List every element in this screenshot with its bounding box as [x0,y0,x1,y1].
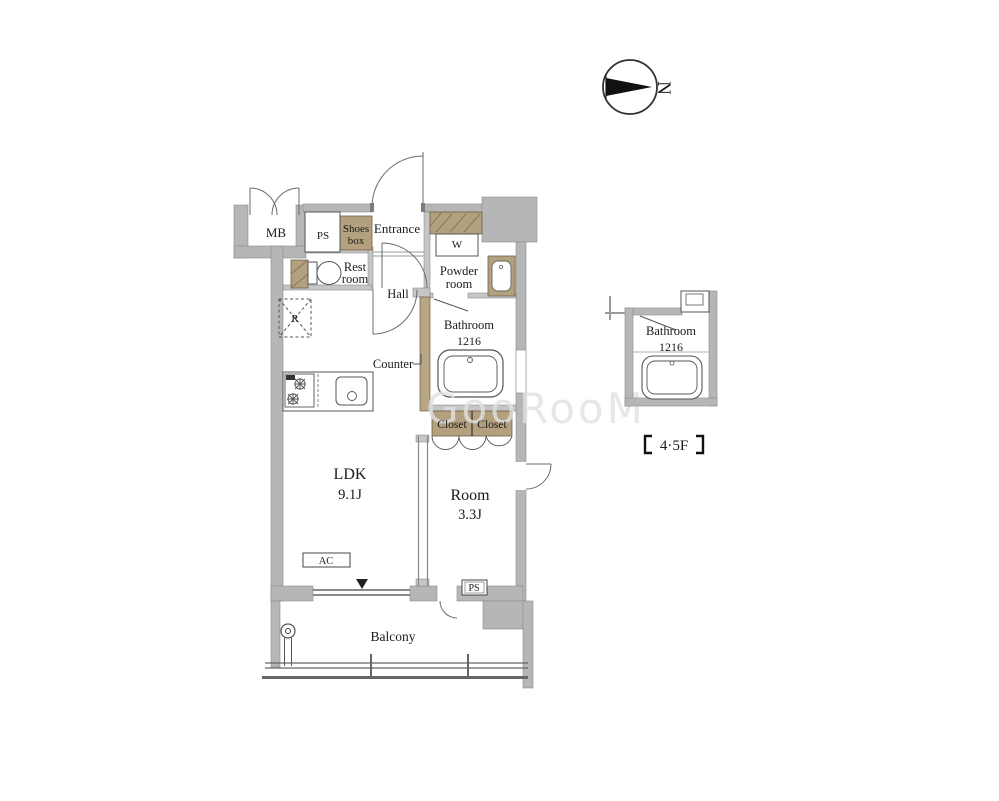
wall-balcony-block [483,601,523,629]
inset-sink-fixture [681,291,709,312]
right-lenticular-bracket [696,436,703,453]
inset-wall-top [625,308,682,315]
inset-bathtub [642,356,702,399]
powder-vanity [488,256,515,296]
label-bathroom-2: 1216 [457,334,481,348]
inset-wall-left [625,308,633,406]
label-refrigerator: R [291,313,299,325]
mb-doors [250,188,299,215]
wall-bottom-left [271,586,313,601]
partition-hall-stub [413,288,430,297]
entrance-step-lines [372,252,424,256]
hall-door-upper [382,243,427,288]
room-side-door [526,464,551,489]
wall-topright-block [482,197,537,242]
kitchen-unit [283,372,373,411]
window-marker-icon [356,579,368,589]
label-room-size: 3.3J [458,507,482,523]
bathroom-door-line [434,299,468,311]
label-entrance: Entrance [374,221,420,236]
inset-label-bathroom: Bathroom [646,324,696,338]
label-ac: AC [319,556,334,567]
wall-top-right [424,204,484,212]
stove-panel [286,375,295,380]
floorplan-drawing: GooRooM MB PS Shoes box Entrance W Rest … [0,0,999,801]
label-ldk: LDK [334,466,367,483]
entrance-door [372,152,423,207]
label-powder-2: room [446,277,473,291]
closet-scallops [432,436,512,450]
wall-balcony-right [523,601,533,688]
label-room: Room [450,487,490,504]
room-divider [419,436,428,586]
label-powder-1: Powder [440,264,479,278]
compass-north-label: N [653,81,674,95]
label-ps-top: PS [317,230,329,242]
compass: N [603,60,674,114]
label-ps-bottom: PS [468,583,479,594]
inset-floor-label-text: 4·5F [660,438,688,454]
balcony-faucet-icon [281,624,295,666]
label-balcony: Balcony [371,629,416,644]
partition-restroom-right [368,247,373,290]
balcony-railing [262,654,528,678]
label-counter: Counter [373,357,414,371]
wall-bottom-mid [410,586,437,601]
ldk-window [313,590,410,595]
inset-floor-label: 4·5F [645,436,703,454]
inset-context-stubs [605,296,625,320]
label-bathroom-1: Bathroom [444,318,494,332]
restroom-cabinet [291,260,308,288]
label-hall: Hall [387,287,409,301]
washer-area-hatch [430,212,482,234]
left-lenticular-bracket [645,436,652,453]
label-closet-right: Closet [477,419,507,431]
wall-mb-bottom [234,246,306,258]
label-closet-left: Closet [437,419,467,431]
label-restroom-2: room [342,272,369,286]
label-washer: W [452,239,463,251]
inset-label-size: 1216 [659,340,683,354]
inset-wall-right [709,291,717,406]
label-shoes-box-2: box [348,235,365,247]
wall-balcony-left [271,601,280,667]
entrance-jambs [370,203,425,212]
floorplan-page: GooRooM MB PS Shoes box Entrance W Rest … [0,0,999,801]
toilet [308,262,341,285]
wall-top-left [303,204,372,212]
room-door-opening [515,462,527,490]
label-mb: MB [266,225,287,240]
label-ldk-size: 9.1J [338,487,362,503]
label-shoes-box-1: Shoes [343,223,369,235]
balcony-door-swing [440,601,457,618]
